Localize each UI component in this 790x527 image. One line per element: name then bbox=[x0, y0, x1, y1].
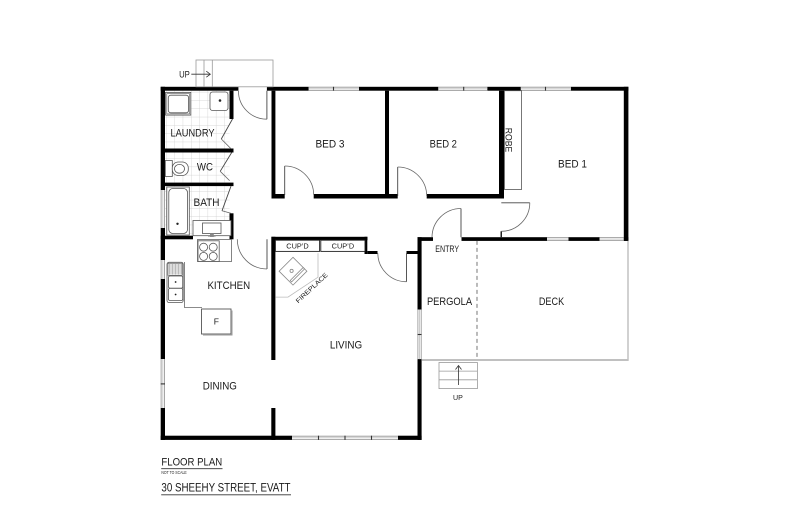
svg-text:DINING: DINING bbox=[203, 380, 237, 392]
svg-text:UP: UP bbox=[453, 393, 463, 402]
svg-text:BED 2: BED 2 bbox=[430, 139, 457, 151]
svg-text:BED 1: BED 1 bbox=[558, 159, 587, 171]
svg-text:CUP’D: CUP’D bbox=[286, 242, 309, 251]
svg-text:CUP’D: CUP’D bbox=[332, 242, 355, 251]
svg-text:DECK: DECK bbox=[539, 296, 565, 308]
svg-text:LIVING: LIVING bbox=[330, 340, 362, 352]
svg-text:NOT TO SCALE: NOT TO SCALE bbox=[161, 470, 186, 475]
svg-text:FLOOR PLAN: FLOOR PLAN bbox=[161, 457, 222, 469]
svg-text:ENTRY: ENTRY bbox=[435, 244, 459, 254]
svg-text:BATH: BATH bbox=[194, 197, 220, 209]
svg-text:BED 3: BED 3 bbox=[315, 139, 344, 151]
svg-text:30 SHEEHY STREET, EVATT: 30 SHEEHY STREET, EVATT bbox=[161, 481, 290, 495]
svg-text:KITCHEN: KITCHEN bbox=[207, 280, 250, 292]
svg-text:ROBE: ROBE bbox=[503, 128, 514, 153]
svg-text:F: F bbox=[214, 317, 219, 327]
svg-text:LAUNDRY: LAUNDRY bbox=[171, 128, 216, 140]
svg-text:UP: UP bbox=[179, 70, 190, 80]
svg-text:WC: WC bbox=[197, 161, 213, 173]
svg-text:PERGOLA: PERGOLA bbox=[427, 296, 473, 308]
